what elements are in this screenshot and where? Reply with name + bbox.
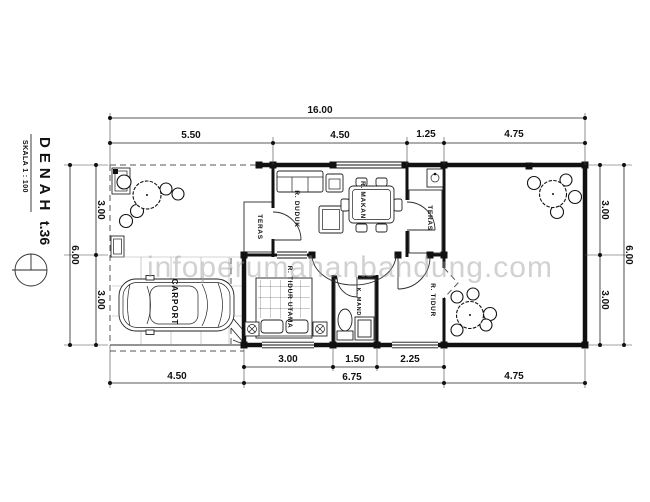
dim-bottom-outer-3: 4.75: [504, 371, 524, 382]
dim-bottom-inner-2: 1.50: [345, 354, 365, 365]
dim-bottom-inner-1: 3.00: [278, 354, 298, 365]
dim-top-seg-1: 5.50: [181, 130, 201, 141]
window: [262, 341, 314, 349]
drawing-title: DENAH: [36, 137, 53, 215]
title-block: DENAH t.36 SKALA 1 : 100: [12, 134, 53, 286]
room-label-r-tidur: R. TIDUR: [429, 283, 436, 317]
room-label-r-duduk: R. DUDUK: [293, 190, 300, 227]
dimensions-bottom: 3.00 1.50 2.25 4.50 6.75 4.75: [108, 345, 587, 388]
room-label-k-mandi: K. MANDI: [355, 288, 361, 319]
window: [336, 161, 402, 169]
water-tub: [355, 317, 374, 340]
toilet: [337, 309, 353, 340]
tree-cluster-garden-bottom: [451, 288, 497, 336]
teras-side-floor: [409, 190, 442, 253]
watermark-text: infoperumahanbandung.com: [147, 251, 553, 284]
dim-left-total: 6.00: [69, 245, 80, 265]
pillow: [261, 320, 283, 333]
coffee-table: [319, 206, 343, 233]
dim-bottom-outer-2: 6.75: [342, 372, 362, 383]
dim-top-seg-3: 1.25: [416, 129, 436, 140]
tree-cluster-garden-top: [528, 174, 582, 219]
tree-cluster-front: [117, 175, 184, 228]
dining-table: [341, 178, 402, 232]
nightstand-symbol: [245, 322, 259, 336]
section-marker-symbol: [12, 254, 47, 286]
drawing-type-label: t.36: [37, 221, 53, 245]
dim-top-total: 16.00: [307, 105, 332, 116]
dimensions-right: 3.00 3.00 6.00: [585, 163, 634, 347]
room-label-carport: CARPORT: [170, 279, 179, 326]
floorplan-sheet: TERAS R. DUDUK R. MAKAN TERAS R. TIDUR U…: [0, 0, 650, 502]
room-label-teras-front: TERAS: [256, 214, 263, 240]
dim-top-seg-2: 4.50: [330, 130, 350, 141]
dim-bottom-outer-1: 4.50: [167, 371, 187, 382]
dim-top-seg-4: 4.75: [504, 129, 524, 140]
scale-label: SKALA 1 : 100: [21, 140, 28, 193]
room-label-r-makan: R. MAKAN: [359, 181, 366, 219]
washbasin: [427, 169, 443, 187]
fence-post: [111, 236, 124, 257]
armchair: [326, 174, 343, 192]
dim-left-seg-2: 3.00: [95, 290, 106, 310]
window: [392, 341, 438, 349]
bed: [256, 278, 312, 338]
nightstand-symbol: [313, 322, 327, 336]
floorplan-canvas: TERAS R. DUDUK R. MAKAN TERAS R. TIDUR U…: [0, 0, 650, 502]
dimensions-left: 3.00 3.00 6.00: [64, 163, 108, 347]
dim-right-seg-1: 3.00: [599, 200, 610, 220]
dim-left-seg-1: 3.00: [95, 200, 106, 220]
dimensions-top: 16.00 5.50 4.50 1.25 4.75: [108, 105, 587, 165]
dim-right-total: 6.00: [623, 245, 634, 265]
sofa: [277, 171, 323, 192]
room-label-teras-side: TERAS: [426, 205, 433, 231]
dim-bottom-inner-3: 2.25: [400, 354, 420, 365]
dim-right-seg-2: 3.00: [599, 290, 610, 310]
car-mirror: [146, 330, 154, 335]
